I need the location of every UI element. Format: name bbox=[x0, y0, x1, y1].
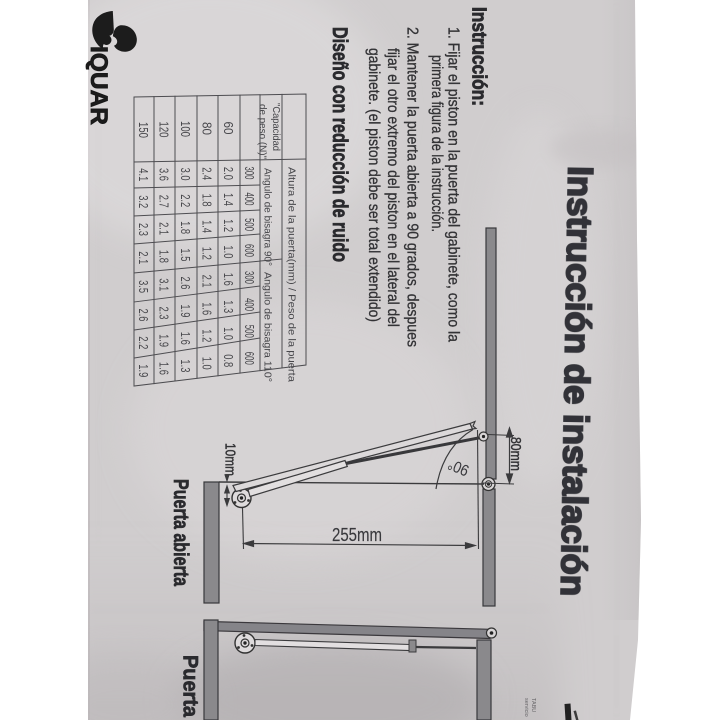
svg-text:1.6: 1.6 bbox=[178, 332, 193, 345]
svg-text:1.8: 1.8 bbox=[157, 250, 172, 263]
svg-text:1.9: 1.9 bbox=[178, 304, 193, 317]
svg-text:1.9: 1.9 bbox=[136, 364, 151, 377]
svg-text:1. Fijar el piston en la puert: 1. Fijar el piston en la puerta del gabi… bbox=[444, 27, 461, 342]
svg-text:"Capacidad: "Capacidad bbox=[270, 103, 281, 151]
svg-text:2.0: 2.0 bbox=[221, 167, 236, 180]
svg-text:3.5: 3.5 bbox=[136, 280, 151, 293]
svg-text:2.7: 2.7 bbox=[157, 195, 172, 208]
svg-text:600: 600 bbox=[242, 244, 257, 257]
svg-text:Altura de la puerta(mm) / Peso: Altura de la puerta(mm) / Peso de la pue… bbox=[286, 167, 297, 382]
svg-text:1.3: 1.3 bbox=[221, 300, 236, 313]
svg-text:3.1: 3.1 bbox=[157, 278, 172, 291]
svg-text:1.0: 1.0 bbox=[200, 357, 215, 370]
svg-text:2. Mantener la puerta abierta: 2. Mantener la puerta abierta a 90 grado… bbox=[404, 27, 421, 347]
svg-text:fijar el otro extremo del pist: fijar el otro extremo del piston en el l… bbox=[384, 48, 401, 327]
svg-text:10mm: 10mm bbox=[222, 443, 239, 476]
svg-text:Angulo de bisagra 110°: Angulo de bisagra 110° bbox=[262, 272, 273, 382]
svg-text:1.4: 1.4 bbox=[221, 193, 236, 206]
svg-text:Puerta abierta: Puerta abierta bbox=[169, 479, 192, 586]
svg-text:1.6: 1.6 bbox=[221, 273, 236, 286]
svg-text:2.3: 2.3 bbox=[157, 307, 172, 320]
svg-text:300: 300 bbox=[242, 167, 257, 180]
svg-text:1.0: 1.0 bbox=[221, 327, 236, 340]
svg-text:2.1: 2.1 bbox=[136, 251, 151, 264]
svg-text:2.2: 2.2 bbox=[178, 194, 193, 207]
svg-text:1.9: 1.9 bbox=[157, 334, 172, 347]
svg-text:1.2: 1.2 bbox=[200, 329, 215, 342]
svg-text:500: 500 bbox=[242, 218, 257, 231]
svg-text:4.1: 4.1 bbox=[136, 168, 151, 181]
svg-text:Puerta: Puerta bbox=[179, 655, 202, 717]
svg-text:1.2: 1.2 bbox=[200, 247, 215, 260]
svg-text:600: 600 bbox=[242, 352, 257, 365]
svg-text:400: 400 bbox=[242, 193, 257, 206]
svg-text:150: 150 bbox=[136, 122, 151, 138]
svg-text:2.3: 2.3 bbox=[136, 223, 151, 236]
svg-text:IQUAR: IQUAR bbox=[85, 46, 112, 125]
svg-text:300: 300 bbox=[242, 271, 257, 284]
svg-text:1.8: 1.8 bbox=[178, 221, 193, 234]
svg-text:2.1: 2.1 bbox=[200, 275, 215, 288]
svg-text:de peso (N)": de peso (N)" bbox=[257, 104, 268, 159]
svg-text:Angulo de bisagra 90°: Angulo de bisagra 90° bbox=[262, 168, 273, 266]
svg-text:2.2: 2.2 bbox=[136, 336, 151, 349]
svg-text:1.4: 1.4 bbox=[200, 220, 215, 233]
svg-text:1.8: 1.8 bbox=[200, 194, 215, 207]
svg-text:primera figura de la instrucci: primera figura de la instrucción. bbox=[428, 55, 445, 232]
svg-text:400: 400 bbox=[242, 298, 257, 311]
svg-text:3.0: 3.0 bbox=[178, 168, 193, 181]
svg-text:3.6: 3.6 bbox=[157, 168, 172, 181]
svg-text:1.0: 1.0 bbox=[221, 245, 236, 258]
svg-text:2.4: 2.4 bbox=[200, 167, 215, 180]
svg-text:100: 100 bbox=[178, 121, 193, 137]
svg-text:80: 80 bbox=[200, 122, 215, 135]
svg-text:255mm: 255mm bbox=[332, 524, 382, 545]
svg-text:80mm: 80mm bbox=[507, 437, 523, 471]
svg-text:60: 60 bbox=[221, 122, 236, 135]
svg-text:Instrucción de instalación: Instrucción de instalación bbox=[553, 166, 599, 597]
svg-text:1.6: 1.6 bbox=[157, 362, 172, 375]
svg-text:2.6: 2.6 bbox=[178, 277, 193, 290]
svg-text:1.2: 1.2 bbox=[221, 219, 236, 232]
svg-text:Instrucción:: Instrucción: bbox=[468, 7, 490, 106]
svg-text:1.5: 1.5 bbox=[178, 248, 193, 261]
svg-text:Diseño con reducción de ruido: Diseño con reducción de ruido bbox=[328, 27, 351, 262]
svg-text:gabinete. (el piston debe ser: gabinete. (el piston debe ser total exte… bbox=[365, 48, 382, 322]
svg-text:1.3: 1.3 bbox=[178, 359, 193, 372]
svg-text:servicio: servicio bbox=[523, 698, 529, 717]
svg-text:3.2: 3.2 bbox=[136, 195, 151, 208]
svg-text:0.8: 0.8 bbox=[221, 354, 236, 367]
svg-text:TABU: TABU bbox=[530, 698, 536, 712]
svg-text:1.6: 1.6 bbox=[200, 302, 215, 315]
svg-text:500: 500 bbox=[242, 325, 257, 338]
svg-text:2.6: 2.6 bbox=[136, 309, 151, 322]
svg-text:2.1: 2.1 bbox=[157, 222, 172, 235]
svg-text:120: 120 bbox=[157, 122, 172, 138]
